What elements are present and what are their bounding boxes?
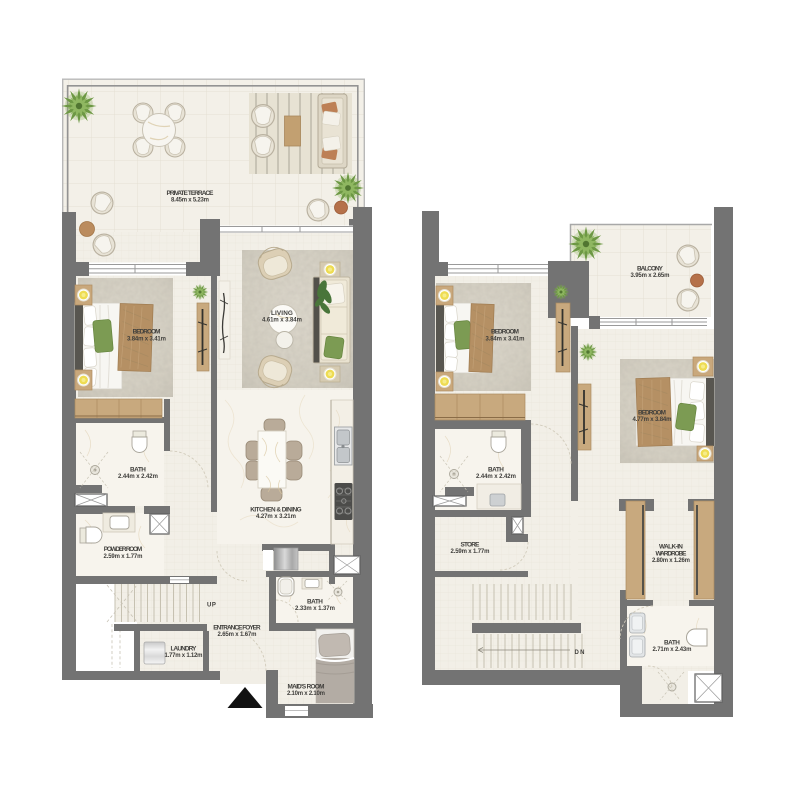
svg-text:2.44m x 2.42m: 2.44m x 2.42m xyxy=(118,474,158,480)
svg-text:3.84m x 3.41m: 3.84m x 3.41m xyxy=(486,336,525,342)
svg-text:BEDROOM: BEDROOM xyxy=(491,329,519,336)
svg-text:STORE: STORE xyxy=(461,542,481,549)
svg-text:4.27m x 3.21m: 4.27m x 3.21m xyxy=(256,514,296,520)
svg-text:2.33m x 1.37m: 2.33m x 1.37m xyxy=(295,606,335,612)
svg-text:2.59m x 1.77m: 2.59m x 1.77m xyxy=(451,549,490,555)
svg-text:WARDROBE: WARDROBE xyxy=(656,551,688,558)
svg-text:2.59m x 1.77m: 2.59m x 1.77m xyxy=(104,554,143,560)
svg-text:BATH: BATH xyxy=(664,640,680,647)
svg-text:2.10m x 2.10m: 2.10m x 2.10m xyxy=(287,691,325,697)
svg-text:POWDER ROOM: POWDER ROOM xyxy=(104,546,143,553)
svg-text:4.77m x 3.84m: 4.77m x 3.84m xyxy=(633,417,672,423)
svg-text:8.45m x 5.23m: 8.45m x 5.23m xyxy=(171,197,209,203)
svg-text:BEDROOM: BEDROOM xyxy=(638,410,666,417)
svg-text:2.80m x 1.26m: 2.80m x 1.26m xyxy=(652,558,690,564)
svg-text:BATH: BATH xyxy=(130,467,146,474)
svg-text:ENTRANCE FOYER: ENTRANCE FOYER xyxy=(213,625,261,632)
svg-text:DN: DN xyxy=(575,650,585,656)
svg-text:2.65m x 1.67m: 2.65m x 1.67m xyxy=(218,632,257,638)
svg-text:MAID'S ROOM: MAID'S ROOM xyxy=(288,684,325,691)
svg-text:2.71m x 2.43m: 2.71m x 2.43m xyxy=(653,647,692,653)
svg-text:4.61m x 3.84m: 4.61m x 3.84m xyxy=(262,318,302,324)
svg-text:1.77m x 1.12m: 1.77m x 1.12m xyxy=(165,653,203,659)
svg-text:BEDROOM: BEDROOM xyxy=(133,329,161,336)
svg-text:UP: UP xyxy=(207,603,216,609)
svg-text:3.95m x 2.65m: 3.95m x 2.65m xyxy=(631,273,670,279)
svg-text:BATH: BATH xyxy=(307,599,323,606)
svg-text:KITCHEN & DINING: KITCHEN & DINING xyxy=(250,507,302,514)
svg-text:BALCONY: BALCONY xyxy=(637,266,664,273)
svg-text:LIVING: LIVING xyxy=(271,310,293,317)
svg-text:PRIVATE TERRACE: PRIVATE TERRACE xyxy=(167,190,215,197)
svg-text:LAUNDRY: LAUNDRY xyxy=(171,646,198,653)
svg-text:WALK-IN: WALK-IN xyxy=(659,544,683,551)
svg-text:2.44m x 2.42m: 2.44m x 2.42m xyxy=(476,474,516,480)
svg-text:3.84m x 3.41m: 3.84m x 3.41m xyxy=(127,336,166,342)
svg-text:BATH: BATH xyxy=(488,467,504,474)
